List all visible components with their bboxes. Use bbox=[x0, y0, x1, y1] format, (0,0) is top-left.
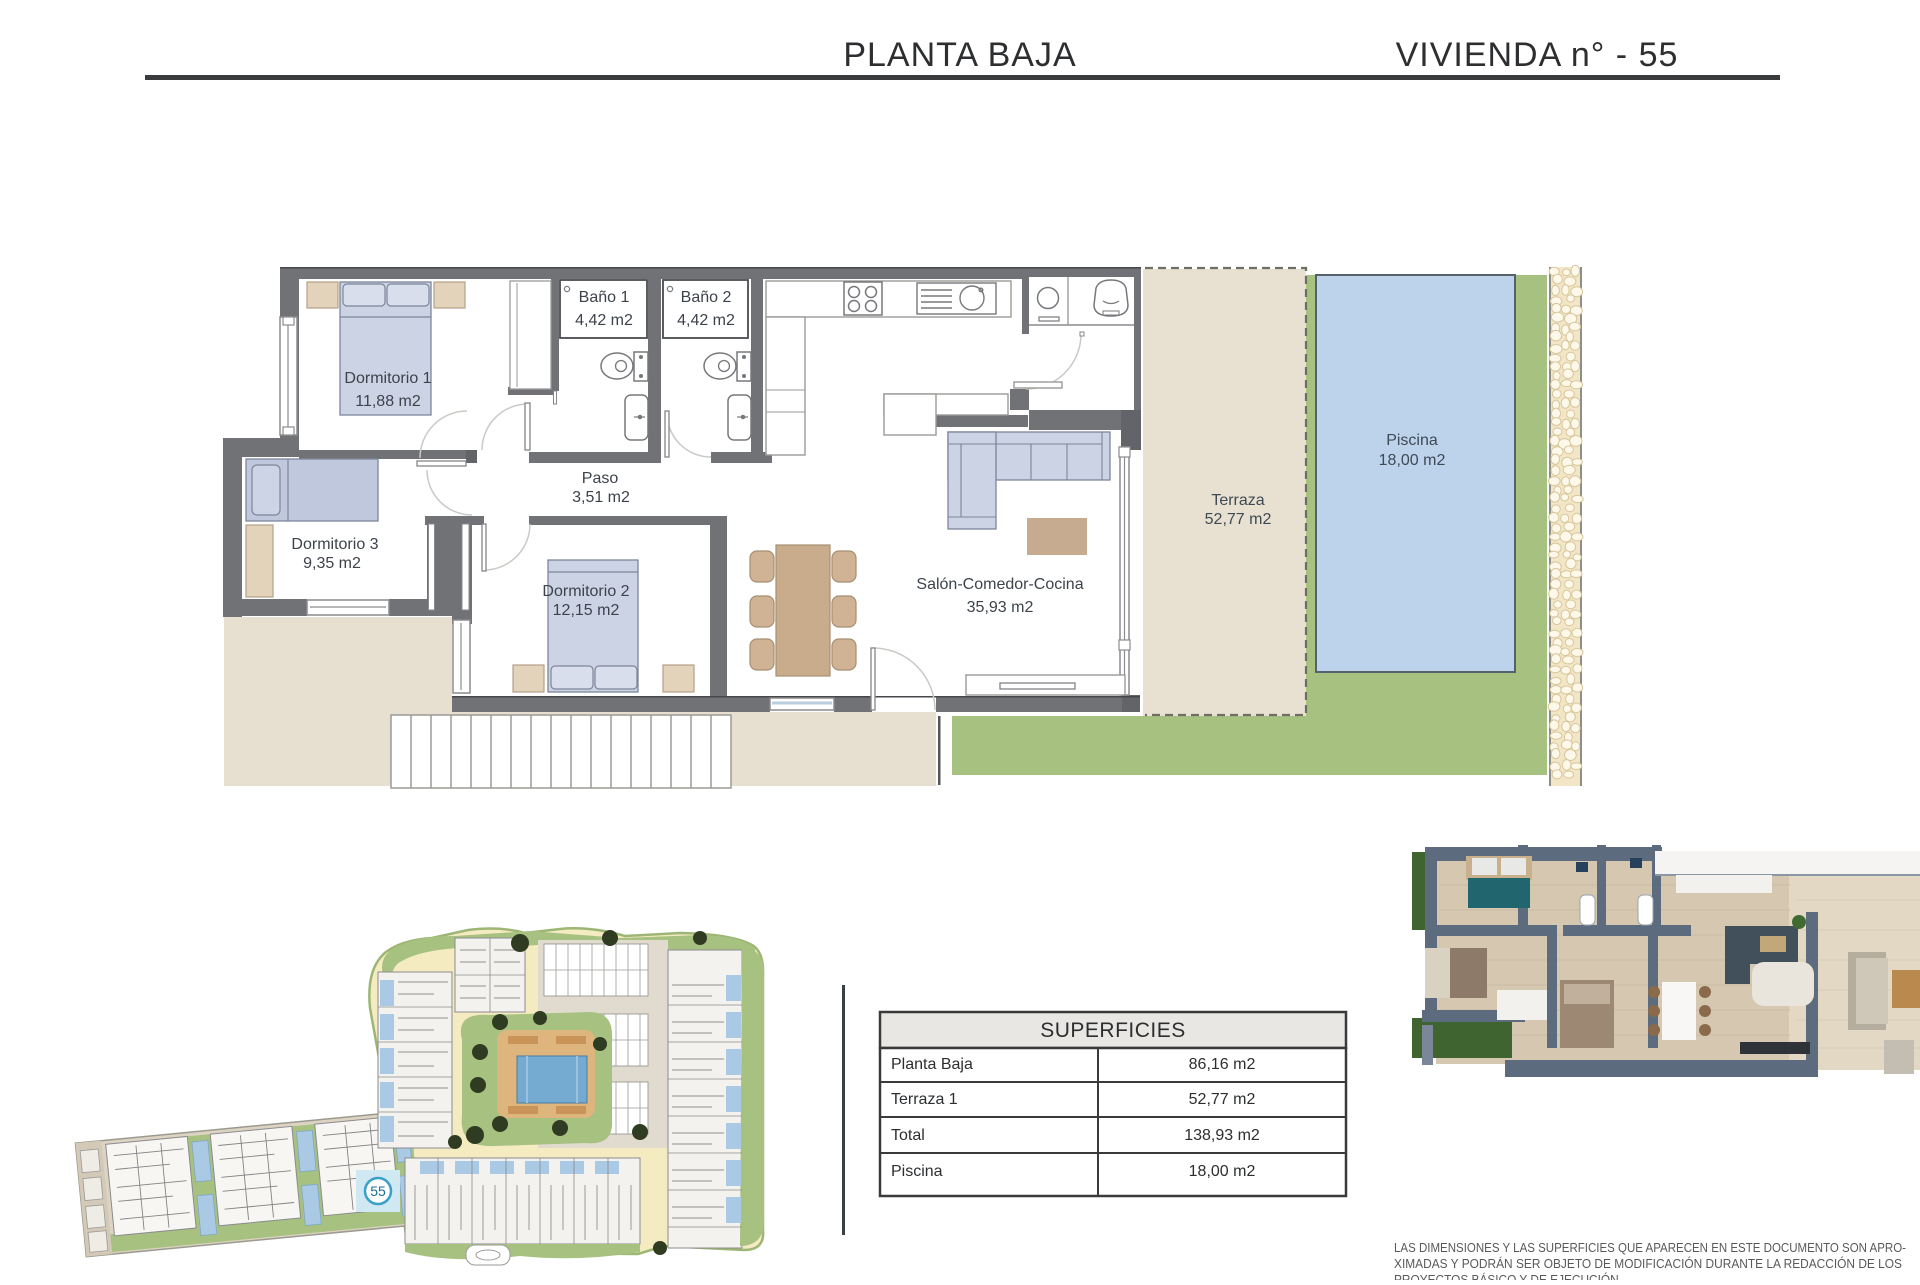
svg-text:LAS DIMENSIONES Y LAS SUPERFIC: LAS DIMENSIONES Y LAS SUPERFICIES QUE AP… bbox=[1394, 1241, 1906, 1255]
svg-text:Baño 1: Baño 1 bbox=[579, 289, 630, 306]
svg-text:Baño 2: Baño 2 bbox=[681, 289, 732, 306]
svg-text:4,42 m2: 4,42 m2 bbox=[575, 312, 633, 329]
svg-text:Paso: Paso bbox=[582, 470, 619, 487]
svg-text:4,42 m2: 4,42 m2 bbox=[677, 312, 735, 329]
svg-text:86,16 m2: 86,16 m2 bbox=[1189, 1056, 1256, 1073]
svg-text:52,77 m2: 52,77 m2 bbox=[1189, 1091, 1256, 1108]
svg-text:Total: Total bbox=[891, 1127, 925, 1144]
svg-text:138,93 m2: 138,93 m2 bbox=[1184, 1127, 1260, 1144]
svg-text:Salón-Comedor-Cocina: Salón-Comedor-Cocina bbox=[916, 576, 1083, 593]
svg-text:VIVIENDA n° - 55: VIVIENDA n° - 55 bbox=[1396, 36, 1679, 74]
svg-text:9,35 m2: 9,35 m2 bbox=[303, 555, 361, 572]
svg-text:PROYECTOS BÁSICO Y DE EJECUCIÓ: PROYECTOS BÁSICO Y DE EJECUCIÓN. bbox=[1394, 1272, 1622, 1280]
svg-text:52,77 m2: 52,77 m2 bbox=[1205, 511, 1272, 528]
svg-text:11,88 m2: 11,88 m2 bbox=[355, 393, 421, 410]
svg-text:Piscina: Piscina bbox=[891, 1163, 943, 1180]
svg-text:35,93 m2: 35,93 m2 bbox=[967, 599, 1034, 616]
svg-text:Piscina: Piscina bbox=[1386, 432, 1438, 449]
svg-text:18,00 m2: 18,00 m2 bbox=[1189, 1163, 1256, 1180]
svg-text:PLANTA BAJA: PLANTA BAJA bbox=[843, 36, 1076, 74]
svg-text:Terraza 1: Terraza 1 bbox=[891, 1091, 958, 1108]
svg-text:12,15 m2: 12,15 m2 bbox=[553, 602, 620, 619]
svg-text:Planta Baja: Planta Baja bbox=[891, 1056, 973, 1073]
svg-text:18,00 m2: 18,00 m2 bbox=[1379, 452, 1446, 469]
svg-text:3,51 m2: 3,51 m2 bbox=[572, 489, 630, 506]
svg-text:Dormitorio 2: Dormitorio 2 bbox=[542, 583, 629, 600]
svg-text:XIMADAS Y PODRÁN SER OBJETO DE: XIMADAS Y PODRÁN SER OBJETO DE MODIFICAC… bbox=[1394, 1256, 1902, 1271]
svg-text:Dormitorio 3: Dormitorio 3 bbox=[291, 536, 378, 553]
svg-text:Terraza: Terraza bbox=[1211, 492, 1264, 509]
svg-text:55: 55 bbox=[370, 1183, 386, 1199]
svg-text:SUPERFICIES: SUPERFICIES bbox=[1040, 1019, 1186, 1042]
svg-text:Dormitorio 1: Dormitorio 1 bbox=[344, 370, 431, 387]
